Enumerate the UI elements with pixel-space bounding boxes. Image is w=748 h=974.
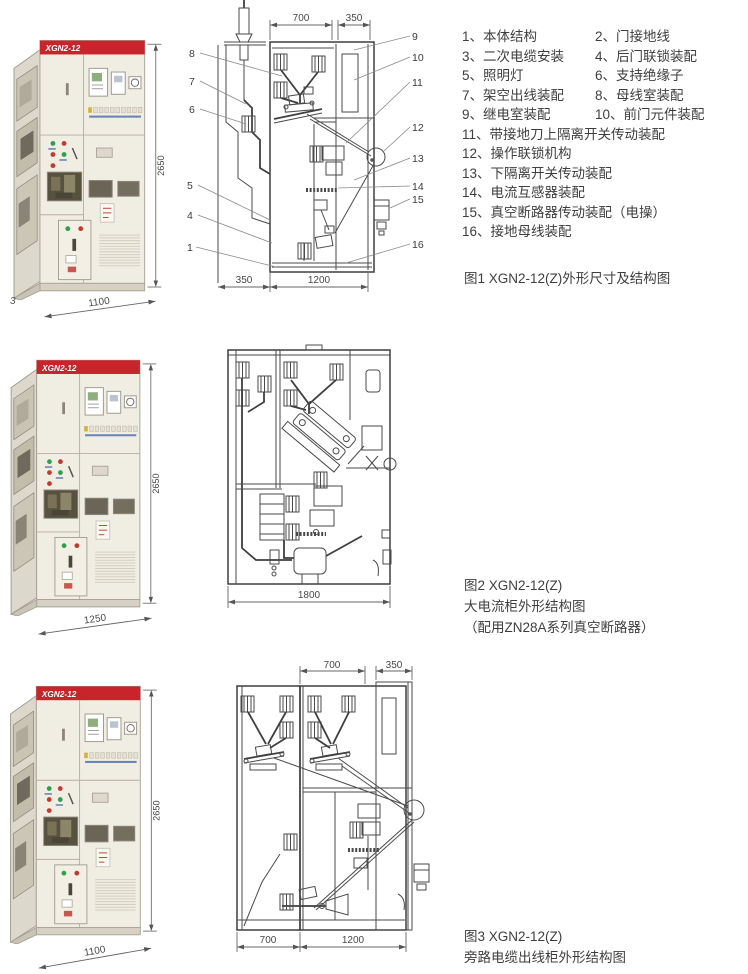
- dim-1200-bottom: 1200: [342, 935, 365, 946]
- fig1-caption: 图1 XGN2-12(Z)外形尺寸及结构图: [464, 268, 670, 289]
- fig3-cabinet-photo: 1100: [0, 664, 188, 974]
- callout-7: 7: [189, 76, 195, 88]
- fig2-caption-line3: （配用ZN28A系列真空断路器）: [464, 617, 655, 638]
- fig1-width-dim-value: 1100: [88, 296, 111, 310]
- vacuum-breaker: [282, 398, 360, 472]
- part-item-2: 2、门接地线: [595, 30, 748, 45]
- part-item-10: 10、前门元件装配: [595, 108, 748, 123]
- callout-14: 14: [412, 181, 424, 193]
- part-item-15: 15、真空断路器传动装配（电操）: [462, 206, 748, 221]
- fig1-cabinet-photo: 1100 3: [4, 22, 192, 324]
- part-item-16: 16、接地母线装配: [462, 225, 748, 240]
- operating-handle-circle: [367, 148, 385, 166]
- fig1-top-dimensions: 700 350: [270, 13, 370, 40]
- fig1-parts-list: 1、本体结构 2、门接地线 3、二次电缆安装 4、后门联锁装配 5、照明灯 6、…: [462, 30, 748, 240]
- callout-6: 6: [189, 104, 195, 116]
- fig2-caption-line1: 图2 XGN2-12(Z): [464, 575, 655, 596]
- fig3-caption-line2: 旁路电缆出线柜外形结构图: [464, 947, 626, 968]
- fig1-corner-label: 3: [10, 296, 16, 307]
- dim-700-top: 700: [324, 660, 341, 671]
- main-compartment-isolator: [308, 696, 355, 770]
- part-item-13: 13、下隔离开关传动装配: [462, 167, 748, 182]
- dim-350-top: 350: [386, 660, 403, 671]
- fig3-bottom-dimensions: 700 1200: [237, 932, 406, 952]
- dim-1800: 1800: [298, 590, 321, 601]
- dim-350: 350: [346, 13, 363, 24]
- fig1-right-callouts: 9 10 11 12 13 14 15 16: [338, 31, 424, 263]
- part-item-3: 3、二次电缆安装: [462, 50, 595, 65]
- fig1-bottom-dimensions: 350 1200: [218, 272, 368, 292]
- fig2-caption: 图2 XGN2-12(Z) 大电流柜外形结构图 （配用ZN28A系列真空断路器）: [464, 575, 655, 638]
- current-transformer-assembly: [260, 472, 342, 540]
- left-compartment-isolator: [241, 696, 293, 770]
- part-item-6: 6、支持绝缘子: [595, 69, 748, 84]
- dim-350-bottom: 350: [236, 275, 253, 286]
- fig1-left-callouts: 8 7 6 5 4 1: [187, 48, 282, 267]
- callout-16: 16: [412, 239, 424, 251]
- callout-10: 10: [412, 52, 424, 64]
- operating-handle-circle: [404, 800, 424, 820]
- dim-700-bottom: 700: [260, 935, 277, 946]
- fig2-width-dimension: 1250: [37, 606, 152, 636]
- fig2-width-dim-value: 1250: [83, 613, 107, 627]
- callout-5: 5: [187, 180, 193, 192]
- fig2-cabinet-photo: 1250: [0, 340, 188, 640]
- part-item-9: 9、继电室装配: [462, 108, 595, 123]
- fig1-sectional-drawing: 8 7 6 5 4 1 9 10 11 12 13: [186, 0, 442, 300]
- catalog-page: XGN2-12: [0, 0, 748, 974]
- part-item-1: 1、本体结构: [462, 30, 595, 45]
- dim-700: 700: [293, 13, 310, 24]
- callout-13: 13: [412, 153, 424, 165]
- fig2-caption-line2: 大电流柜外形结构图: [464, 596, 655, 617]
- callout-4: 4: [187, 210, 193, 222]
- overhead-bushing: [224, 0, 266, 100]
- part-item-14: 14、电流互感器装配: [462, 186, 748, 201]
- callout-9: 9: [412, 31, 418, 43]
- callout-1: 1: [187, 242, 193, 254]
- fig2-sectional-drawing: 1800: [196, 336, 424, 624]
- part-item-7: 7、架空出线装配: [462, 89, 595, 104]
- part-item-4: 4、后门联锁装配: [595, 50, 748, 65]
- callout-11: 11: [412, 77, 423, 89]
- callout-12: 12: [412, 122, 424, 134]
- fig3-caption-line1: 图3 XGN2-12(Z): [464, 926, 626, 947]
- callout-15: 15: [412, 194, 424, 206]
- part-item-12: 12、操作联锁机构: [462, 147, 748, 162]
- fig3-caption: 图3 XGN2-12(Z) 旁路电缆出线柜外形结构图: [464, 926, 626, 968]
- callout-8: 8: [189, 48, 195, 60]
- electric-operator-box: [414, 864, 429, 890]
- part-item-11: 11、带接地刀上隔离开关传动装配: [462, 128, 748, 143]
- electric-operator-box: [374, 200, 389, 235]
- fig1-width-dimension: 1100: [43, 289, 156, 319]
- fig3-sectional-drawing: 700 350 700 1200: [222, 658, 467, 974]
- fig2-bottom-dimension: 1800: [228, 586, 390, 608]
- fig3-width-dimension: 1100: [37, 936, 152, 970]
- dim-1200: 1200: [308, 275, 331, 286]
- part-item-5: 5、照明灯: [462, 69, 595, 84]
- fig3-top-dimensions: 700 350: [300, 660, 412, 684]
- part-item-8: 8、母线室装配: [595, 89, 748, 104]
